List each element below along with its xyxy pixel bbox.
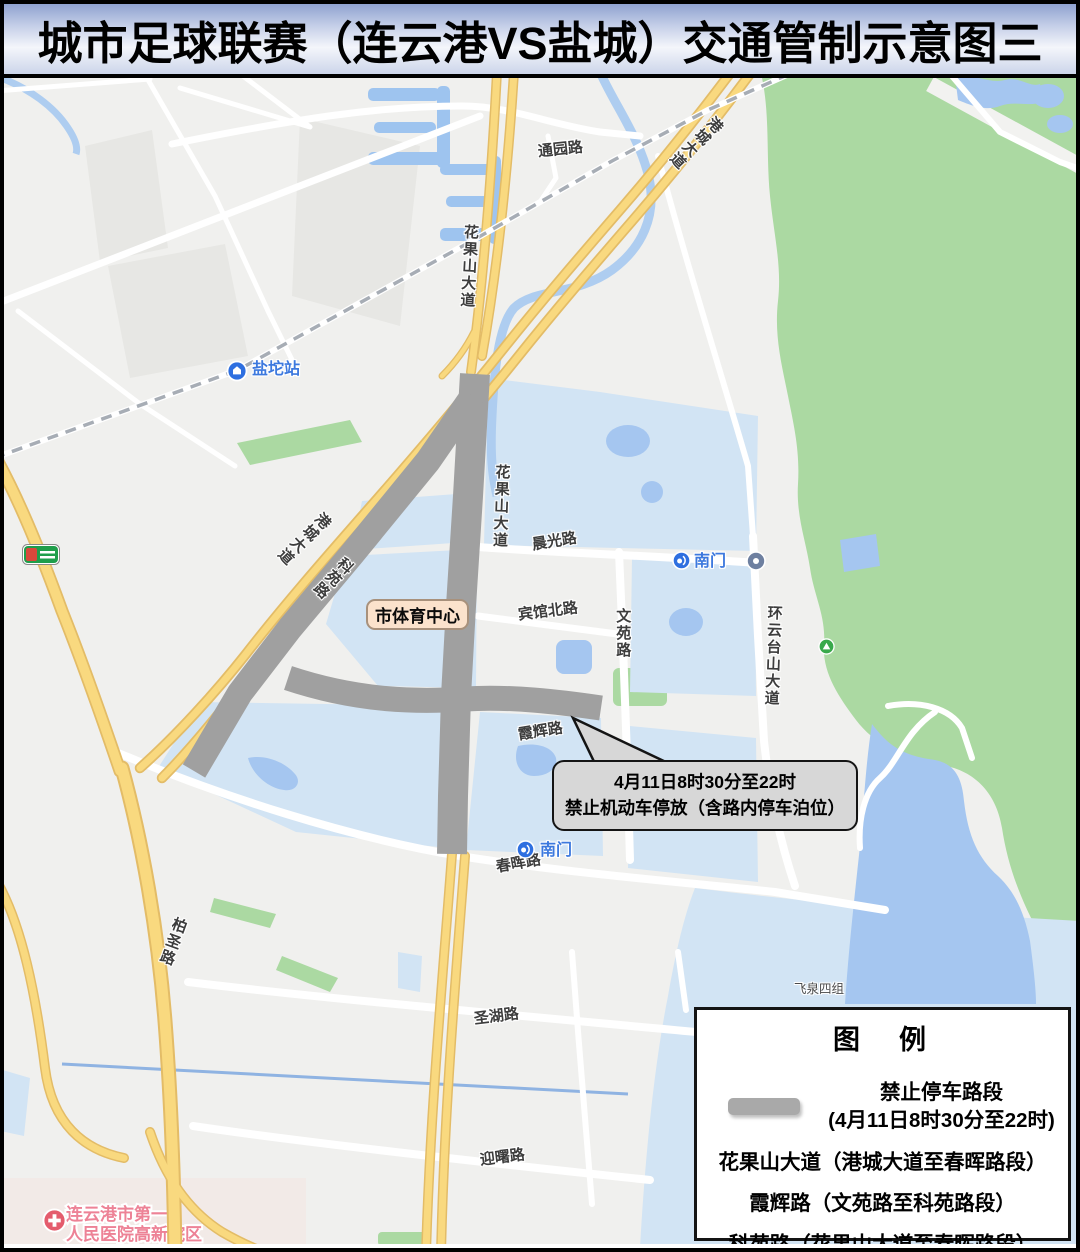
metro-exit-icon-north (672, 551, 691, 570)
stadium-label: 市体育中心 (366, 599, 469, 630)
legend-no-parking-line2: (4月11日8时30分至22时) (823, 1107, 1060, 1135)
metro-exit-icon-south (516, 840, 535, 859)
legend-title: 图 例 (705, 1018, 1060, 1057)
no-parking-callout: 4月11日8时30分至22时 禁止机动车停放（含路内停车泊位） (552, 760, 858, 831)
station-label-nanmen-south: 南门 (540, 842, 572, 859)
place-label-feiquan: 飞泉四组 (794, 983, 844, 997)
restricted-road-swatch (728, 1098, 800, 1115)
legend-no-parking-line1: 禁止停车路段 (823, 1079, 1060, 1107)
callout-line2: 禁止机动车停放（含路内停车泊位） (565, 795, 845, 821)
infographic-frame: 城市足球联赛（连云港VS盐城）交通管制示意图三 (0, 0, 1080, 1252)
station-label-yantuo: 盐坨站 (252, 361, 300, 378)
legend-item-xiahui: 霞辉路（文苑路至科苑路段） (705, 1186, 1060, 1216)
hospital-cross-icon (42, 1208, 67, 1233)
road-label-wenyuan: 文苑路 (614, 608, 630, 659)
poi-dot-icon (746, 551, 766, 571)
callout-line1: 4月11日8时30分至22时 (565, 769, 845, 795)
park-icon (818, 638, 835, 655)
road-label-huaguoshan-north: 花果山大道 (458, 224, 479, 310)
road-label-huanyuntaishan: 环云台山大道 (762, 605, 782, 708)
legend-swatch-row: 禁止停车路段 (4月11日8时30分至22时) (705, 1079, 1060, 1134)
metro-station-icon (226, 360, 248, 382)
road-label-huaguoshan-mid: 花果山大道 (491, 464, 510, 550)
legend-item-keyuan: 科苑路（花果山大道至春晖路段） (705, 1227, 1060, 1244)
legend-panel: 图 例 禁止停车路段 (4月11日8时30分至22时) 花果山大道（港城大道至春… (694, 1007, 1071, 1241)
legend-item-huaguoshan: 花果山大道（港城大道至春晖路段） (705, 1145, 1060, 1175)
title-bar: 城市足球联赛（连云港VS盐城）交通管制示意图三 (4, 4, 1076, 78)
station-label-nanmen-north: 南门 (694, 553, 726, 570)
highway-shield-icon (22, 544, 60, 565)
page-title: 城市足球联赛（连云港VS盐城）交通管制示意图三 (37, 7, 1042, 72)
hospital-name-line1: 连云港市第一 (66, 1204, 168, 1224)
map-canvas: 连云港市第一 人民医院高新院区 (4, 78, 1076, 1244)
